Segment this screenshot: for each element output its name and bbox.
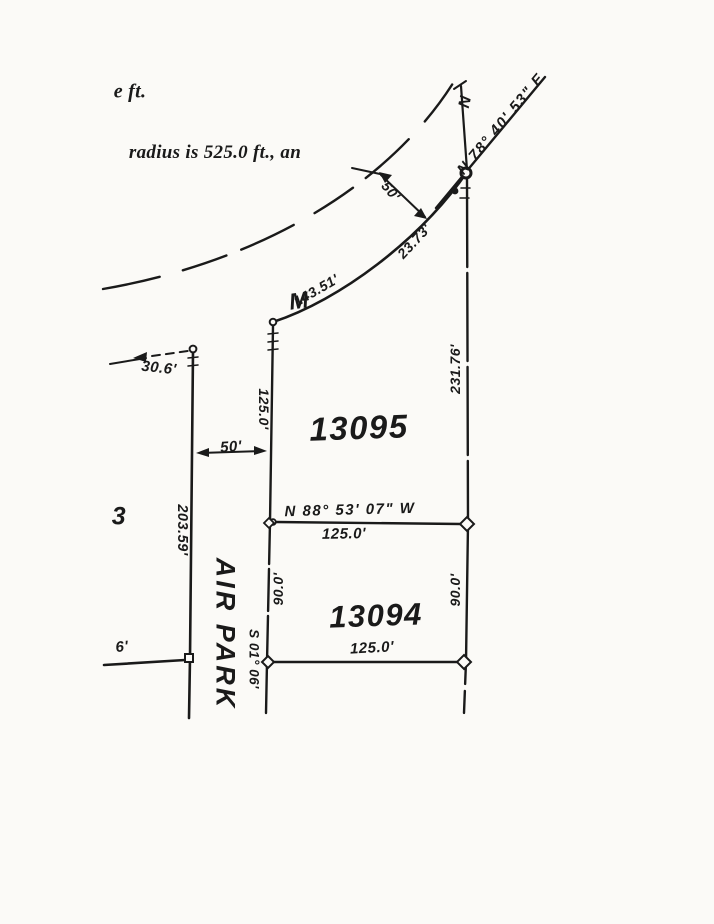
plat-drawing: e ft. radius is 525.0 ft., an N 78° 40' … [0,0,714,924]
dimension-lot13095-east: 231.76' [447,344,463,394]
dimension-street-width: 50' [220,438,243,456]
lot-number-left-partial: 3 [112,503,126,532]
setback-leader-dashed [152,351,188,356]
street-name: AIR PARK [210,558,241,711]
dimension-lot13094-west: 90.0' [270,572,286,605]
dimension-setback-30-6: 30.6' [141,358,178,379]
north-stub-tick [454,81,466,89]
east-lot-line-mid [466,524,468,662]
west-lot-line-lower [266,662,267,713]
lot13094-se-diamond [457,655,471,669]
lot13094-sw-diamond [262,656,274,668]
left-line-top-marker [190,346,197,353]
stub-line [104,660,185,665]
note-top-partial: e ft. [114,81,147,104]
bearing-street-line: S 01° 06' [247,629,262,689]
stub-square-marker [185,654,193,662]
note-radius: radius is 525.0 ft., an [129,142,301,164]
lot-number-13094: 13094 [329,596,424,635]
point-m-marker [270,319,277,326]
division-right-diamond [460,517,474,531]
dimension-division-length: 125.0' [322,525,366,543]
plat-linework [0,0,714,924]
tangent-point-dot [452,188,459,195]
hatch-ticks-east-line [460,188,470,198]
street-width-arrow-left [196,448,209,457]
dimension-left-boundary: 203.59' [174,504,190,555]
lot-division-line [276,522,461,524]
point-label-m: M [287,286,310,315]
dimension-lot13094-south: 125.0' [350,638,395,657]
east-lot-line-upper [467,179,468,524]
street-width-arrow-right [254,446,267,455]
bearing-lot-division: N 88° 53' 07" W [284,500,415,520]
lot-number-13095: 13095 [309,407,410,448]
dimension-stub: 6' [115,638,130,656]
dimension-lot13094-east: 90.0' [447,573,463,606]
dimension-lot13095-west: 125.0' [256,388,272,429]
